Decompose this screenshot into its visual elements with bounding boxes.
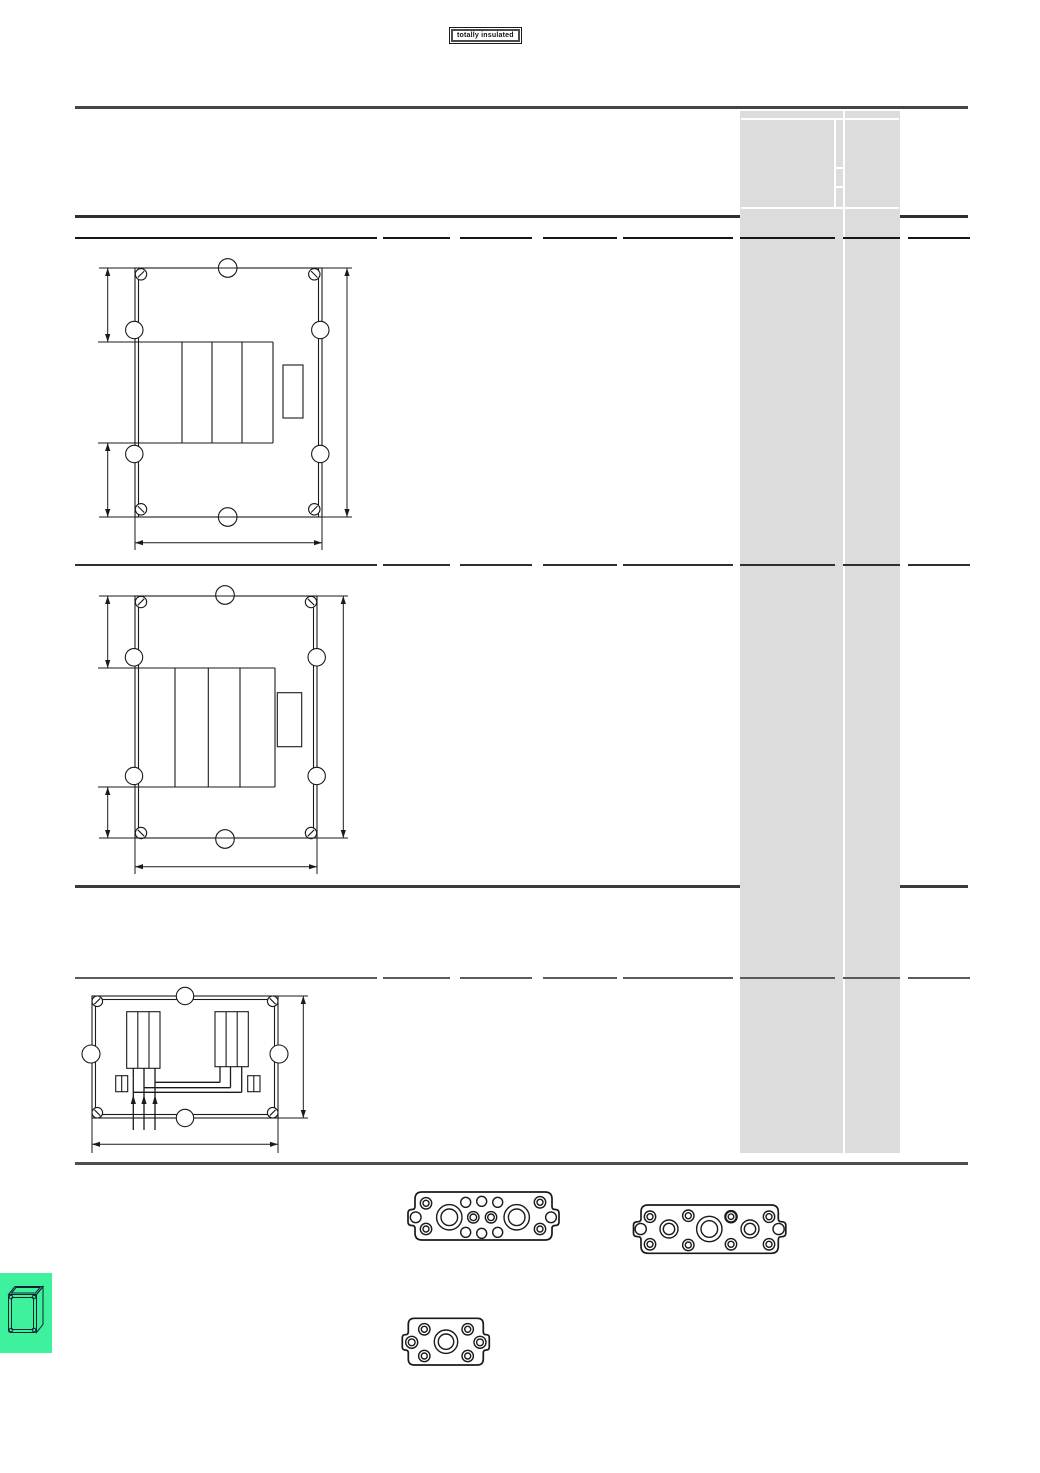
- wire-arrowheads: [131, 1095, 158, 1104]
- table-column-underline-segment: [740, 237, 835, 239]
- totally-insulated-badge: totally insulated: [449, 27, 522, 44]
- terminal-block-right: [215, 1012, 248, 1067]
- table-column-underline-segment: [908, 564, 970, 566]
- highlight-column-header-line: [741, 207, 899, 209]
- dimension-lines: [92, 996, 308, 1153]
- enclosure-body: [98, 259, 329, 527]
- table-column-underline-segment: [908, 237, 970, 239]
- table-bottom-rule: [75, 1162, 968, 1165]
- table-column-underline-segment: [843, 977, 900, 979]
- table-column-underline-segment: [543, 237, 617, 239]
- table-column-underline-segment: [75, 977, 377, 979]
- table-column-underline-segment: [843, 237, 900, 239]
- catalog-page: totally insulated: [0, 0, 1040, 1473]
- highlight-column-cell-line: [834, 167, 844, 169]
- table-column-underline-segment: [543, 564, 617, 566]
- table-column-underline-segment: [908, 977, 970, 979]
- highlight-column-divider: [843, 111, 845, 1153]
- table-column-underline-segment: [623, 237, 733, 239]
- table-column-underline-segment: [543, 977, 617, 979]
- table-column-underline-segment: [623, 977, 733, 979]
- side-knockout: [277, 693, 301, 747]
- table-column-underline-segment: [460, 237, 532, 239]
- terminal-block: [98, 342, 273, 443]
- totally-insulated-badge-label: totally insulated: [451, 29, 520, 42]
- enclosure-3d-icon: [0, 1273, 52, 1353]
- flange-plate-small: [398, 1312, 496, 1372]
- highlight-column-header-line: [741, 118, 899, 120]
- enclosure-body: [98, 586, 325, 849]
- table-column-underline-segment: [740, 977, 835, 979]
- table-column-underline-segment: [843, 564, 900, 566]
- table-column-underline-segment: [460, 564, 532, 566]
- table-column-underline-segment: [383, 977, 450, 979]
- side-knockout: [283, 365, 303, 418]
- top-rule: [75, 106, 968, 109]
- corner-screws: [135, 596, 316, 838]
- terminal-block-left: [127, 1012, 160, 1069]
- table-column-underline-segment: [383, 564, 450, 566]
- highlight-column: [740, 111, 900, 1153]
- section-tab-green: [0, 1273, 52, 1353]
- highlight-column-cell-line: [834, 186, 844, 188]
- corner-screws: [92, 996, 278, 1118]
- flange-plate-b: [630, 1198, 790, 1262]
- table-column-underline-segment: [460, 977, 532, 979]
- terminal-block: [98, 668, 275, 787]
- table-column-underline-segment: [75, 564, 377, 566]
- enclosure-body: [82, 987, 288, 1130]
- drawing-enclosure-top-view-3: [75, 985, 325, 1160]
- flange-plate-a: [400, 1188, 565, 1248]
- corner-screws: [135, 269, 320, 515]
- table-column-underline-segment: [623, 564, 733, 566]
- drawing-enclosure-top-view-1: [85, 255, 375, 555]
- table-column-underline-segment: [383, 237, 450, 239]
- dimension-arrowheads: [92, 996, 306, 1147]
- highlight-column-divider: [834, 118, 836, 209]
- side-knockouts: [116, 1076, 260, 1092]
- drawing-enclosure-top-view-2: [85, 585, 375, 885]
- table-column-underline-segment: [740, 564, 835, 566]
- table-column-underline-segment: [75, 237, 377, 239]
